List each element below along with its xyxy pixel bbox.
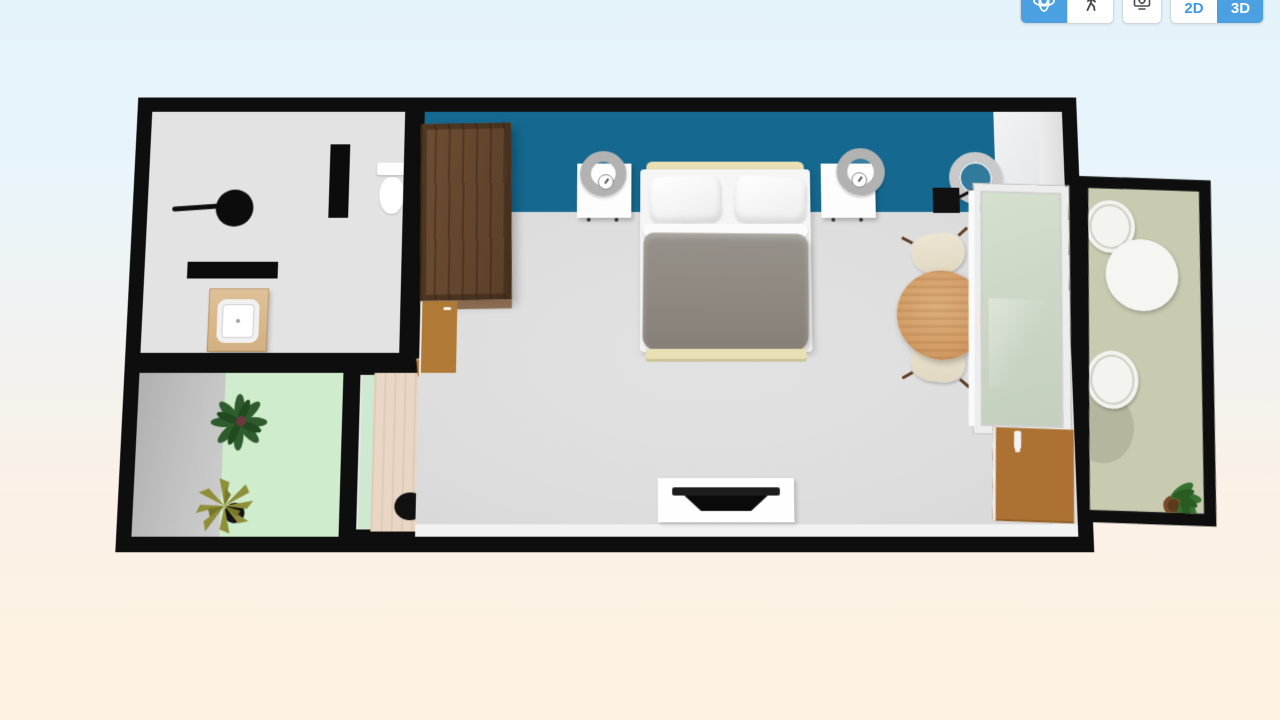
orbit-icon <box>1032 0 1056 16</box>
wardrobe[interactable] <box>420 123 512 301</box>
monstera-plant[interactable] <box>206 391 271 454</box>
bathroom-door[interactable] <box>419 301 458 373</box>
view-toolbar: 2D 3D <box>1020 0 1264 24</box>
balcony-floor[interactable] <box>1088 188 1204 514</box>
yucca-plant[interactable] <box>193 476 256 536</box>
bedroom-wall-face-bottom <box>415 524 1078 536</box>
bathroom-wall-bottom <box>124 353 419 373</box>
balcony-round-table[interactable] <box>1105 238 1178 312</box>
bathroom-vanity[interactable] <box>207 288 270 352</box>
bed-duvet <box>642 233 808 352</box>
walk-view-button[interactable] <box>1067 0 1113 23</box>
tv-stand[interactable] <box>658 478 795 522</box>
building-structure <box>115 98 1094 553</box>
bathroom-floor[interactable] <box>140 112 405 353</box>
alarm-clock-right[interactable] <box>851 172 867 187</box>
view-2d-button[interactable]: 2D <box>1171 0 1217 23</box>
pillow-left <box>648 175 721 224</box>
view-3d-label: 3D <box>1231 1 1250 16</box>
vanity-sink <box>216 299 260 343</box>
view-2d-label: 2D <box>1184 1 1203 16</box>
walk-icon <box>1080 0 1102 16</box>
alarm-clock-left[interactable] <box>598 174 614 189</box>
view-3d-button[interactable]: 3D <box>1217 0 1263 23</box>
balcony-chair-bottom[interactable] <box>1088 350 1139 410</box>
floor-plan-canvas[interactable] <box>100 93 1235 560</box>
bathroom-counter[interactable] <box>187 262 278 279</box>
snapshot-group <box>1122 0 1162 24</box>
patio-floor[interactable] <box>131 373 343 537</box>
balcony-potted-plant[interactable] <box>1146 466 1204 514</box>
shower-partition-wall <box>328 144 350 217</box>
pillow-right <box>734 175 806 223</box>
window[interactable] <box>973 184 1070 436</box>
dimension-toggle-group: 2D 3D <box>1170 0 1264 24</box>
entrance-door[interactable] <box>993 427 1075 524</box>
balcony-structure <box>1076 176 1216 527</box>
tv[interactable] <box>684 496 768 511</box>
toilet-tank <box>377 163 407 176</box>
wall-mounted-unit[interactable] <box>933 188 960 213</box>
orbit-view-button[interactable] <box>1021 0 1067 23</box>
bed-footboard <box>646 349 807 362</box>
screenshot-icon <box>1131 0 1153 16</box>
tv-screen <box>672 487 780 495</box>
screenshot-button[interactable] <box>1123 0 1161 23</box>
camera-mode-group <box>1020 0 1114 24</box>
